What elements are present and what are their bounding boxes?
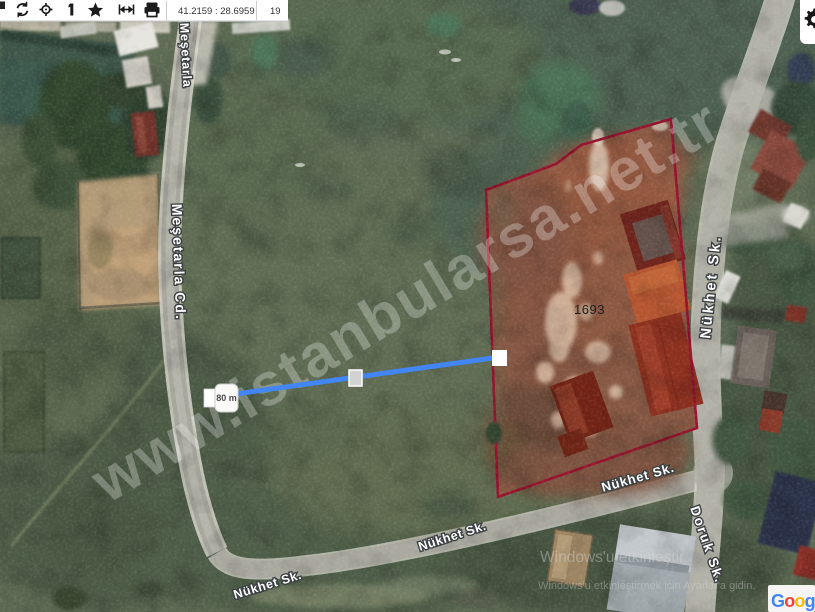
svg-text:41.2159 : 28.6959: 41.2159 : 28.6959	[178, 6, 255, 17]
svg-text:Windows'u etkinleştir: Windows'u etkinleştir	[540, 549, 684, 566]
svg-text:19: 19	[270, 6, 281, 17]
svg-text:Google: Google	[771, 591, 815, 611]
svg-text:80 m: 80 m	[216, 393, 237, 403]
svg-text:Windows'u etkinleştirmek için: Windows'u etkinleştirmek için Ayarlar'a …	[538, 580, 755, 592]
